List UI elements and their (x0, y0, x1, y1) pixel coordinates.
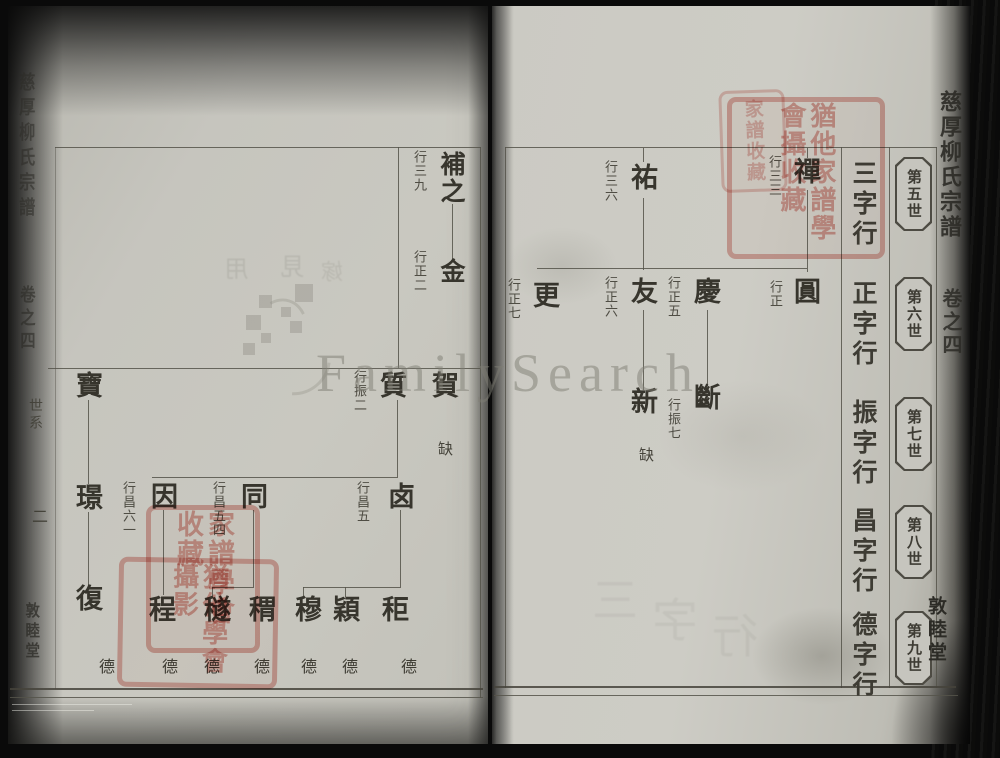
connector-line (88, 400, 89, 484)
connector-line (397, 400, 398, 477)
person-name: 穎 (330, 595, 357, 625)
page-number: 二 (29, 508, 45, 524)
connector-line (303, 587, 401, 588)
person-name: 祐 (628, 163, 655, 193)
table-rule (55, 147, 481, 148)
person-name: 更 (530, 281, 557, 311)
generation-rank: 第九世 (903, 623, 924, 674)
page-top-shadow (8, 6, 488, 116)
person-name: 圓 (791, 277, 818, 307)
connector-line (643, 198, 644, 270)
next-generation-char: 德 (298, 658, 314, 674)
person-name: 友 (628, 277, 655, 307)
ghost-bleedthrough-char: 字 (656, 596, 702, 642)
next-generation-char: 德 (398, 658, 414, 674)
connector-line (707, 310, 708, 386)
generation-rank: 第五世 (903, 169, 924, 220)
ghost-bleedthrough-char: 行 (716, 612, 762, 658)
missing-marker: 缺 (637, 447, 652, 463)
generation-rank: 第七世 (903, 409, 924, 460)
person-name: 復 (73, 584, 100, 614)
table-rule (55, 147, 56, 689)
watermark-text: FamilySearch (316, 342, 700, 404)
lineage-note: 行正七 (507, 278, 520, 320)
generation-cartouche: 第七世 (895, 397, 932, 471)
volume-label: 卷之四 (940, 288, 960, 357)
table-rule (889, 147, 890, 688)
ghost-bleedthrough-char: 見 (284, 254, 308, 278)
section-label: 世系 (27, 398, 41, 432)
seal-script-text: 猶他學會攝影 (167, 562, 229, 683)
ghost-bleedthrough-char: 嫁 (323, 260, 345, 282)
hall-name-left-edge: 敦睦堂 (23, 602, 37, 662)
watermark-logo-square (243, 343, 255, 355)
scanned-genealogy-spread: 用 見 嫁 三 字 行 三字行 正字行 振字行 昌字行 德字行 第五世 第六世 … (0, 0, 1000, 758)
lineage-note: 行正二 (413, 250, 426, 292)
connector-line (88, 512, 89, 587)
red-collection-seal: 猶他家譜學會攝收藏 (727, 97, 885, 259)
volume-label-left-edge: 卷之四 (19, 285, 34, 354)
generation-cartouche: 第六世 (895, 277, 932, 351)
generation-rank: 第六世 (903, 289, 924, 340)
lineage-note: 行正五 (667, 276, 680, 318)
hall-name: 敦睦堂 (926, 596, 945, 665)
generation-cartouche: 第八世 (895, 505, 932, 579)
person-name: 秬 (379, 595, 406, 625)
person-name: 卤 (385, 482, 412, 512)
table-rule (505, 147, 506, 688)
person-name: 璟 (73, 483, 100, 513)
stacked-page-edge (12, 710, 94, 711)
connector-line (400, 510, 401, 587)
connector-line (152, 477, 398, 478)
lineage-note: 行三九 (413, 150, 426, 192)
table-rule (480, 147, 481, 698)
watermark-logo-square (295, 284, 313, 302)
connector-line (643, 148, 644, 162)
red-collection-seal: 猶他學會攝影 (117, 557, 279, 690)
generation-row-label: 德字行 (850, 611, 875, 701)
table-rule (398, 147, 399, 368)
spine-title: 慈厚柳氏宗譜 (938, 90, 960, 240)
generation-rank: 第八世 (903, 517, 924, 568)
connector-line (452, 204, 453, 262)
stacked-page-edge (12, 704, 132, 705)
generation-cartouche: 第五世 (895, 157, 932, 231)
generation-row-label: 振字行 (850, 399, 875, 489)
page-bottom-rule (494, 695, 958, 696)
lineage-note: 行振七 (667, 398, 680, 440)
generation-row-label: 昌字行 (850, 507, 875, 597)
missing-marker: 缺 (436, 441, 451, 457)
next-generation-char: 德 (339, 658, 355, 674)
ghost-bleedthrough-char: 三 (596, 576, 642, 622)
lineage-note: 行三六 (604, 160, 617, 202)
lineage-note: 行昌六一 (122, 481, 135, 537)
lineage-note: 行正 (769, 280, 782, 308)
person-name: 補之 (438, 151, 463, 205)
person-name: 穆 (292, 595, 319, 625)
person-name: 寶 (73, 371, 100, 401)
spine-title-left-edge: 慈厚柳氏宗譜 (17, 72, 33, 222)
ghost-bleedthrough-char: 用 (228, 256, 252, 280)
seal-script-text: 猶他家譜學會攝收藏 (776, 102, 836, 254)
next-generation-char: 德 (96, 658, 112, 674)
lineage-note: 行正六 (604, 276, 617, 318)
page-bottom-rule (494, 686, 956, 688)
page-bottom-rule (10, 697, 483, 698)
person-name: 慶 (691, 277, 718, 307)
sibling-connector-line (537, 268, 807, 269)
generation-row-label: 正字行 (850, 280, 875, 370)
person-name: 金 (438, 258, 463, 285)
lineage-note: 行昌五 (356, 481, 369, 523)
